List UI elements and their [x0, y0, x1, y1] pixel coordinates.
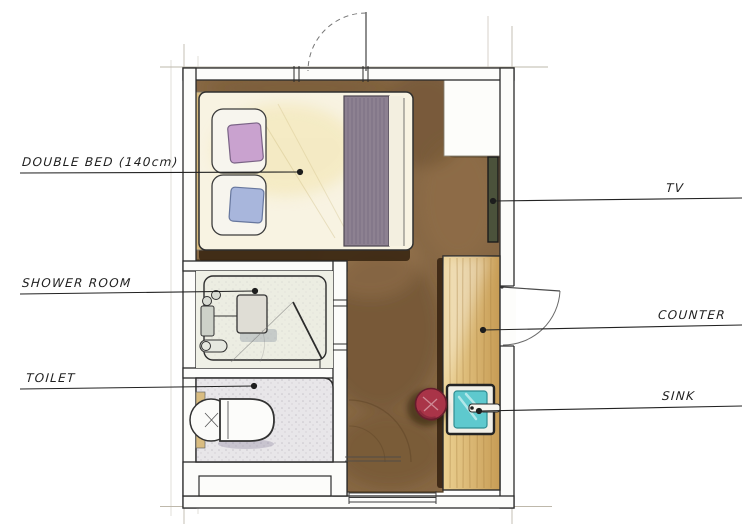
wall-shower-toilet	[183, 368, 347, 378]
leader-sink	[479, 406, 742, 411]
label-counter: COUNTER	[658, 308, 727, 322]
entrance-door-arc	[308, 13, 366, 71]
alcove	[444, 79, 500, 156]
leader-counter	[483, 325, 742, 330]
wall-top	[183, 68, 514, 80]
label-tv: TV	[666, 181, 685, 195]
threshold-hatch	[349, 491, 436, 504]
shower-seat	[237, 295, 267, 333]
wall-shower-top	[183, 261, 347, 271]
blanket	[344, 96, 389, 246]
wall-bathroom-bottom	[183, 462, 347, 496]
shower-control-knob	[203, 297, 212, 306]
label-toilet: TOILET	[26, 371, 77, 385]
shower-room	[196, 271, 333, 368]
label-double-bed: DOUBLE BED (140cm)	[22, 155, 180, 169]
counter	[437, 256, 500, 490]
wall-bathroom-right	[333, 261, 347, 496]
shower-panel	[201, 306, 214, 336]
sink	[447, 385, 500, 434]
pillow-pad-blue	[229, 187, 264, 223]
wall-left	[183, 68, 196, 508]
floor-plan-drawing	[0, 0, 750, 531]
toilet-room	[190, 378, 333, 462]
floor-plan-page: DOUBLE BED (140cm) TV SHOWER ROOM COUNTE…	[0, 0, 750, 531]
double-bed	[196, 92, 413, 250]
label-sink: SINK	[662, 389, 696, 403]
leader-tv	[493, 198, 742, 201]
side-door	[498, 285, 560, 346]
pillow-pad-purple	[227, 123, 263, 164]
label-shower-room: SHOWER ROOM	[22, 276, 133, 290]
sheet-fold	[389, 96, 404, 246]
